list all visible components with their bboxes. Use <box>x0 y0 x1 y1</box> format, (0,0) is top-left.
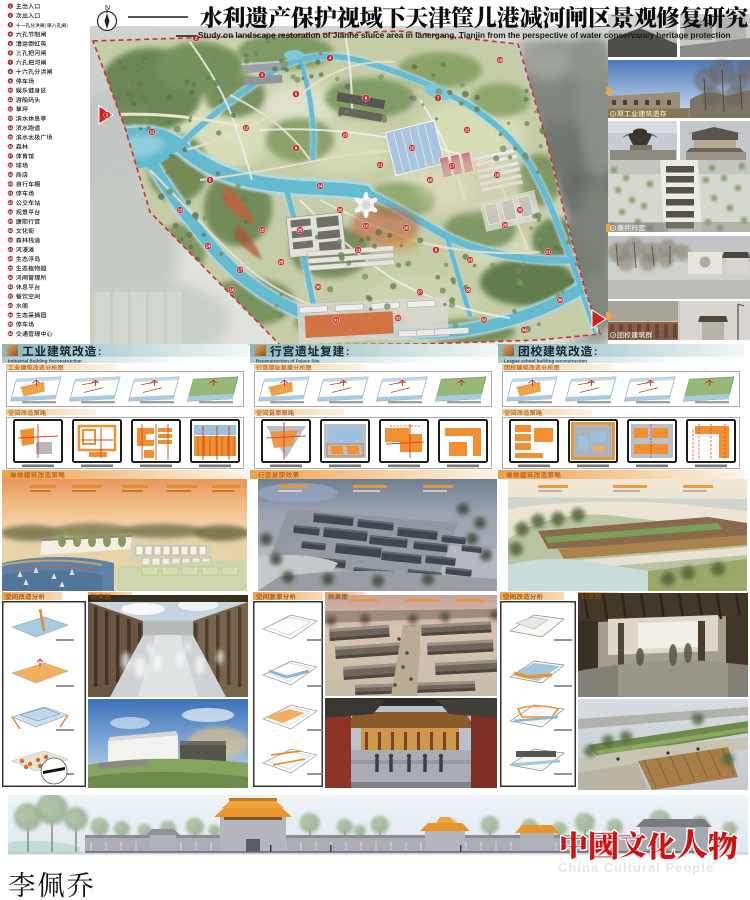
svg-text:16: 16 <box>8 145 12 149</box>
svg-text:31: 31 <box>8 285 12 289</box>
svg-text:9: 9 <box>9 79 11 83</box>
svg-text:30: 30 <box>8 276 12 280</box>
svg-text:21: 21 <box>8 192 12 196</box>
svg-text:33: 33 <box>8 304 12 308</box>
svg-text:28: 28 <box>8 257 12 261</box>
svg-text:17: 17 <box>8 154 12 158</box>
svg-text:15: 15 <box>8 135 12 139</box>
svg-text:36: 36 <box>8 332 12 336</box>
svg-text:8: 8 <box>9 70 11 74</box>
svg-text:26: 26 <box>8 238 12 242</box>
svg-text:23: 23 <box>8 210 12 214</box>
svg-text:10: 10 <box>8 89 12 93</box>
svg-text:6: 6 <box>9 51 11 55</box>
svg-text:7: 7 <box>9 61 11 65</box>
svg-text:3: 3 <box>9 23 11 27</box>
svg-text:2: 2 <box>9 14 11 18</box>
svg-text:19: 19 <box>8 173 12 177</box>
svg-text:27: 27 <box>8 248 12 252</box>
svg-text:12: 12 <box>8 107 12 111</box>
svg-text:18: 18 <box>8 164 12 168</box>
svg-text:35: 35 <box>8 323 12 327</box>
svg-text:20: 20 <box>8 182 12 186</box>
svg-text:11: 11 <box>8 98 12 102</box>
svg-text:13: 13 <box>8 117 12 121</box>
svg-text:1: 1 <box>9 4 11 8</box>
svg-text:5: 5 <box>9 42 11 46</box>
svg-text:25: 25 <box>8 229 12 233</box>
svg-text:22: 22 <box>8 201 12 205</box>
svg-text:32: 32 <box>8 295 12 299</box>
svg-text:29: 29 <box>8 267 12 271</box>
